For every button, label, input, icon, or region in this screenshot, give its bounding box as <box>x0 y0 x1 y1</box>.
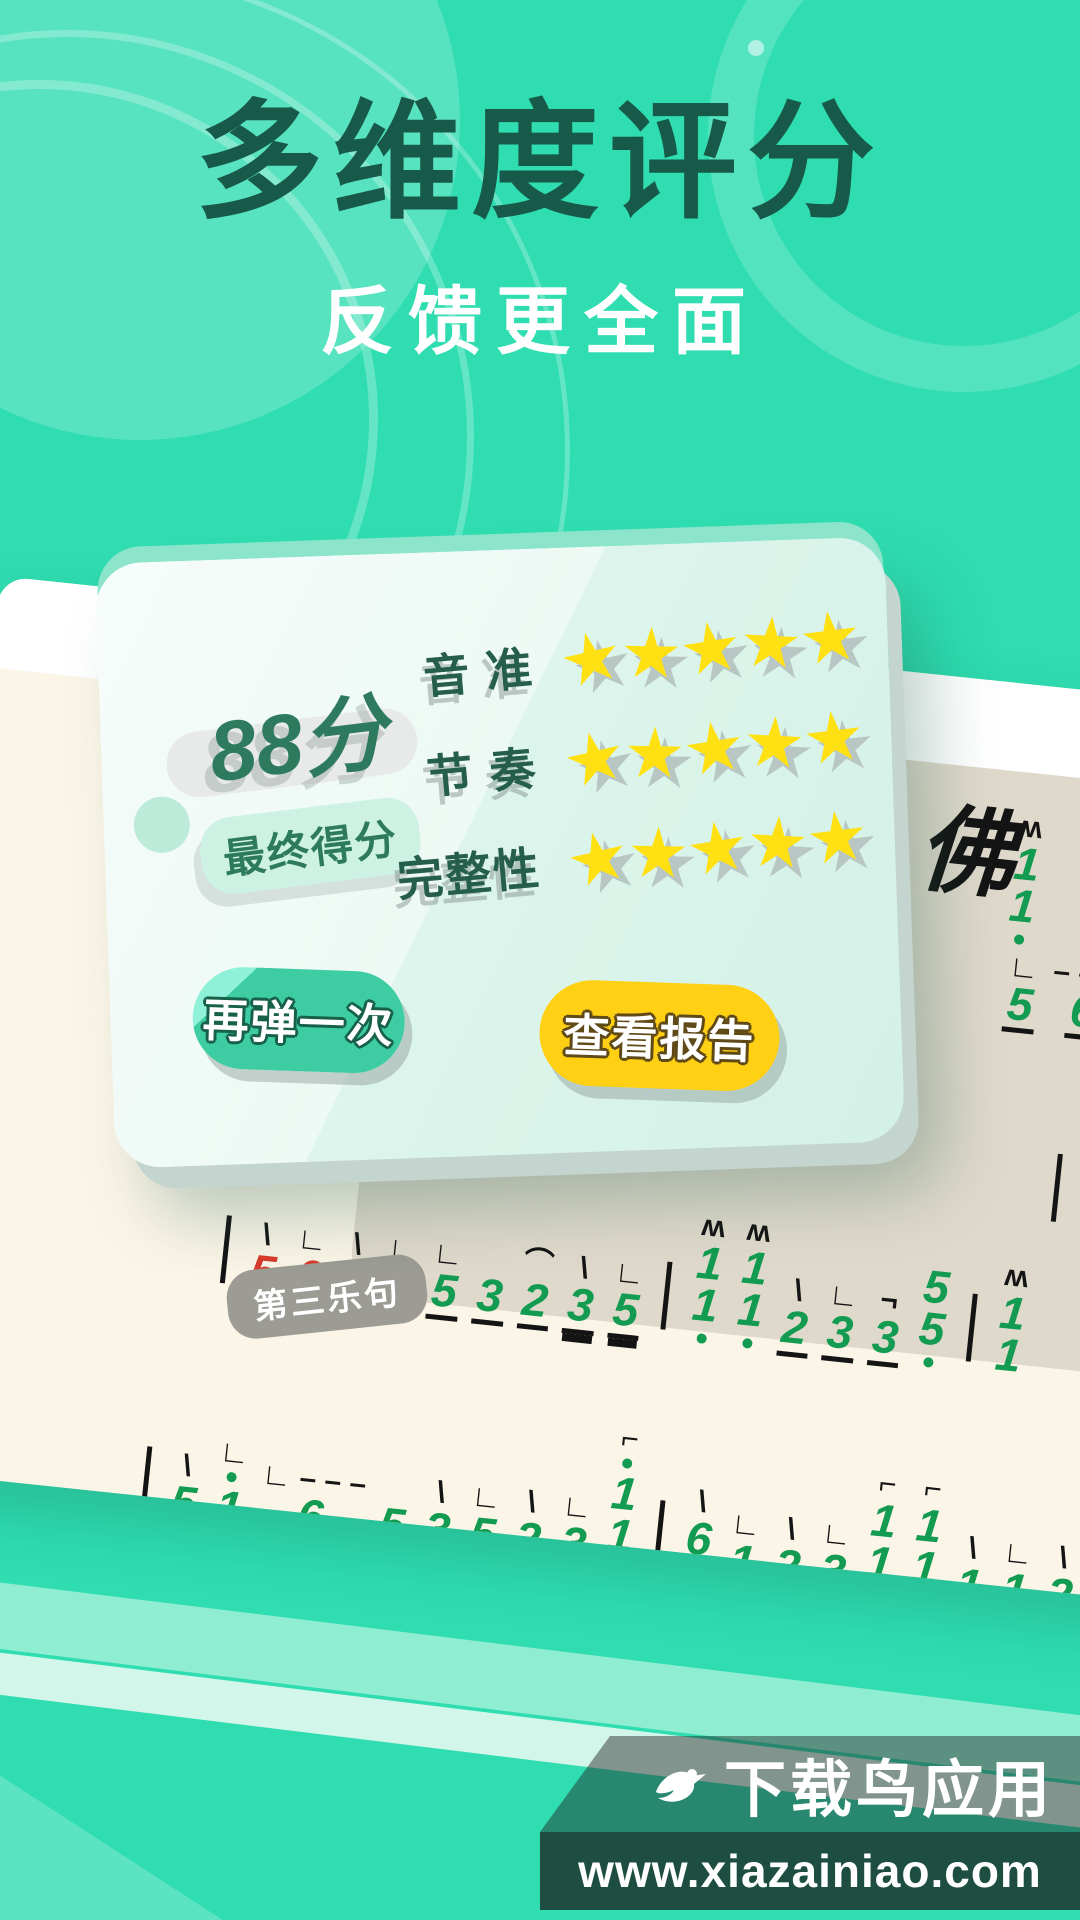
rating-label: 音 准 <box>351 632 536 713</box>
watermark-row-2: www.xiazainiao.com <box>540 1832 1080 1910</box>
octave-dot <box>696 1333 707 1344</box>
note: ∟1 <box>723 1499 764 1592</box>
note-number: 3 <box>555 1521 592 1574</box>
note: \3 <box>562 1243 603 1336</box>
octave-dot <box>689 1571 700 1582</box>
note-number: 55 <box>914 1264 955 1354</box>
note-number: 6 <box>1064 988 1080 1041</box>
score-card: 88分 最终得分 音 准节 奏完整性 再弹一次 查看报告 <box>95 536 906 1168</box>
note-number: 5 <box>1001 981 1038 1034</box>
replay-button[interactable]: 再弹一次 <box>191 965 406 1074</box>
note: ʍ11 <box>990 1251 1035 1381</box>
note: ¬3 <box>867 1275 908 1368</box>
note: ∟1 <box>995 1528 1036 1604</box>
note: \2 <box>776 1265 817 1358</box>
note: \3 <box>419 1467 460 1560</box>
note-number: 11 <box>1004 841 1045 931</box>
page-title: 多维度评分 <box>0 58 1080 243</box>
rating-label: 节 奏 <box>355 732 540 813</box>
note: ∟5 <box>464 1472 505 1565</box>
note-number: 3 <box>562 1282 599 1335</box>
star-icon <box>803 708 865 770</box>
note: ∟5 <box>1001 942 1042 1035</box>
note-number: 5 <box>373 1502 410 1555</box>
note: ʍ11 <box>731 1205 778 1353</box>
fingering-mark <box>492 1235 496 1275</box>
fingering-mark <box>939 1226 943 1266</box>
note-number: 5 <box>426 1268 463 1321</box>
note: ∟3 <box>814 1509 855 1602</box>
note: \2 <box>1041 1532 1080 1604</box>
note: \6 <box>678 1476 721 1587</box>
note-number: 1 <box>950 1563 987 1604</box>
star-icon <box>679 617 743 681</box>
rating-label: 完整性 <box>358 832 543 913</box>
note-number: 3 <box>471 1273 508 1326</box>
note: ⌒2 <box>516 1238 557 1331</box>
note-number: 3 <box>419 1507 456 1560</box>
watermark-app-name: 下载鸟应用 <box>724 1739 1054 1829</box>
note-number: 3 <box>821 1310 858 1363</box>
note-number: 6 <box>680 1516 717 1569</box>
note: ∟3 <box>555 1481 596 1574</box>
note-number: 6 <box>292 1493 329 1546</box>
watermark-url: www.xiazainiao.com <box>578 1844 1042 1898</box>
barline <box>220 1215 232 1283</box>
note: ⌐11 <box>859 1458 906 1604</box>
note-number: 11 <box>687 1240 728 1330</box>
report-button[interactable]: 查看报告 <box>538 978 782 1092</box>
octave-dot <box>611 1563 622 1574</box>
note: ʍ11 <box>685 1201 732 1349</box>
note: ∟1 <box>210 1427 253 1538</box>
page-subtitle: 反馈更全面 <box>0 262 1080 369</box>
note: \1 <box>950 1523 991 1604</box>
note-number: 2 <box>1041 1572 1078 1604</box>
note: ʍ11 <box>1075 1093 1080 1241</box>
decor-stripe-bottom-left <box>0 1672 596 1920</box>
barline <box>654 1500 666 1568</box>
note-number: 1 <box>210 1485 247 1538</box>
note: ∟3 <box>821 1270 862 1363</box>
page-background: 多维度评分 反馈更全面 佛 ʍ11 ∟5– – –6 ʍ11 \5∟6\3∟6∟… <box>0 0 1080 1920</box>
note-number: 11 <box>861 1498 902 1588</box>
octave-dot <box>742 1337 753 1348</box>
note-number: 2 <box>509 1516 546 1569</box>
note: \2 <box>769 1504 810 1597</box>
star-rating <box>568 808 872 890</box>
note-number: 3 <box>867 1315 904 1368</box>
barline <box>966 1293 978 1361</box>
note-number: 2 <box>776 1305 813 1358</box>
note: ∟5 <box>607 1247 648 1340</box>
star-icon <box>623 626 680 683</box>
star-icon <box>748 815 807 874</box>
star-rating <box>561 608 865 690</box>
star-icon <box>630 826 687 883</box>
watermark: 下载鸟应用 www.xiazainiao.com <box>540 1736 1080 1910</box>
note: 3 <box>471 1233 512 1326</box>
note-number: 11 <box>907 1503 948 1593</box>
decor-shine-dot <box>748 40 764 56</box>
note-number: 1 <box>723 1539 760 1592</box>
star-icon <box>686 817 750 881</box>
note-number: 3 <box>814 1548 851 1601</box>
octave-dot <box>923 1357 934 1368</box>
rating-rows: 音 准节 奏完整性 <box>352 599 882 917</box>
note: \2 <box>509 1476 550 1569</box>
fingering-mark: ⌐ <box>620 1414 642 1456</box>
barline <box>661 1261 673 1329</box>
note: ⌐11 <box>905 1463 952 1604</box>
notation-row-2: \5∟1∟ – – –65\3∟5\2∟3⌐11\6∟1\2∟3⌐11⌐11\1… <box>127 1363 1080 1604</box>
watermark-row-1: 下载鸟应用 <box>540 1736 1080 1832</box>
star-icon <box>682 717 746 781</box>
note: \5 <box>165 1440 206 1533</box>
note: ∟5 <box>426 1228 467 1321</box>
star-rating <box>565 708 869 790</box>
bird-icon <box>646 1752 710 1816</box>
star-icon <box>745 715 804 774</box>
note-number: 1 <box>995 1567 1032 1604</box>
note: ⌐11 <box>600 1413 649 1579</box>
note: – – –6 <box>1047 946 1080 1043</box>
note-number: 5 <box>607 1287 644 1340</box>
octave-dot <box>871 1590 882 1601</box>
note-number: 2 <box>516 1278 553 1331</box>
fingering-mark <box>394 1464 398 1504</box>
star-icon <box>741 615 800 674</box>
octave-dot <box>916 1595 927 1604</box>
note: ∟ – – –6 <box>255 1450 368 1551</box>
star-icon <box>799 608 861 670</box>
star-icon <box>561 726 628 793</box>
note-number: 5 <box>165 1480 202 1533</box>
fingering-mark: ∟ <box>218 1427 251 1470</box>
note-number: 11 <box>990 1290 1031 1380</box>
note-number: 11 <box>602 1471 643 1561</box>
star-icon <box>806 808 868 870</box>
star-icon <box>558 626 625 693</box>
note-number: 2 <box>769 1544 806 1597</box>
barline <box>1051 1153 1063 1221</box>
note: 55 <box>912 1224 959 1372</box>
notation-fragment: ∟5– – –6 <box>996 941 1080 1044</box>
note-number: 11 <box>732 1245 773 1335</box>
star-icon <box>565 826 632 893</box>
note-number: 5 <box>464 1512 501 1565</box>
barline <box>140 1446 152 1514</box>
star-icon <box>626 726 683 783</box>
note: 5 <box>373 1462 414 1555</box>
